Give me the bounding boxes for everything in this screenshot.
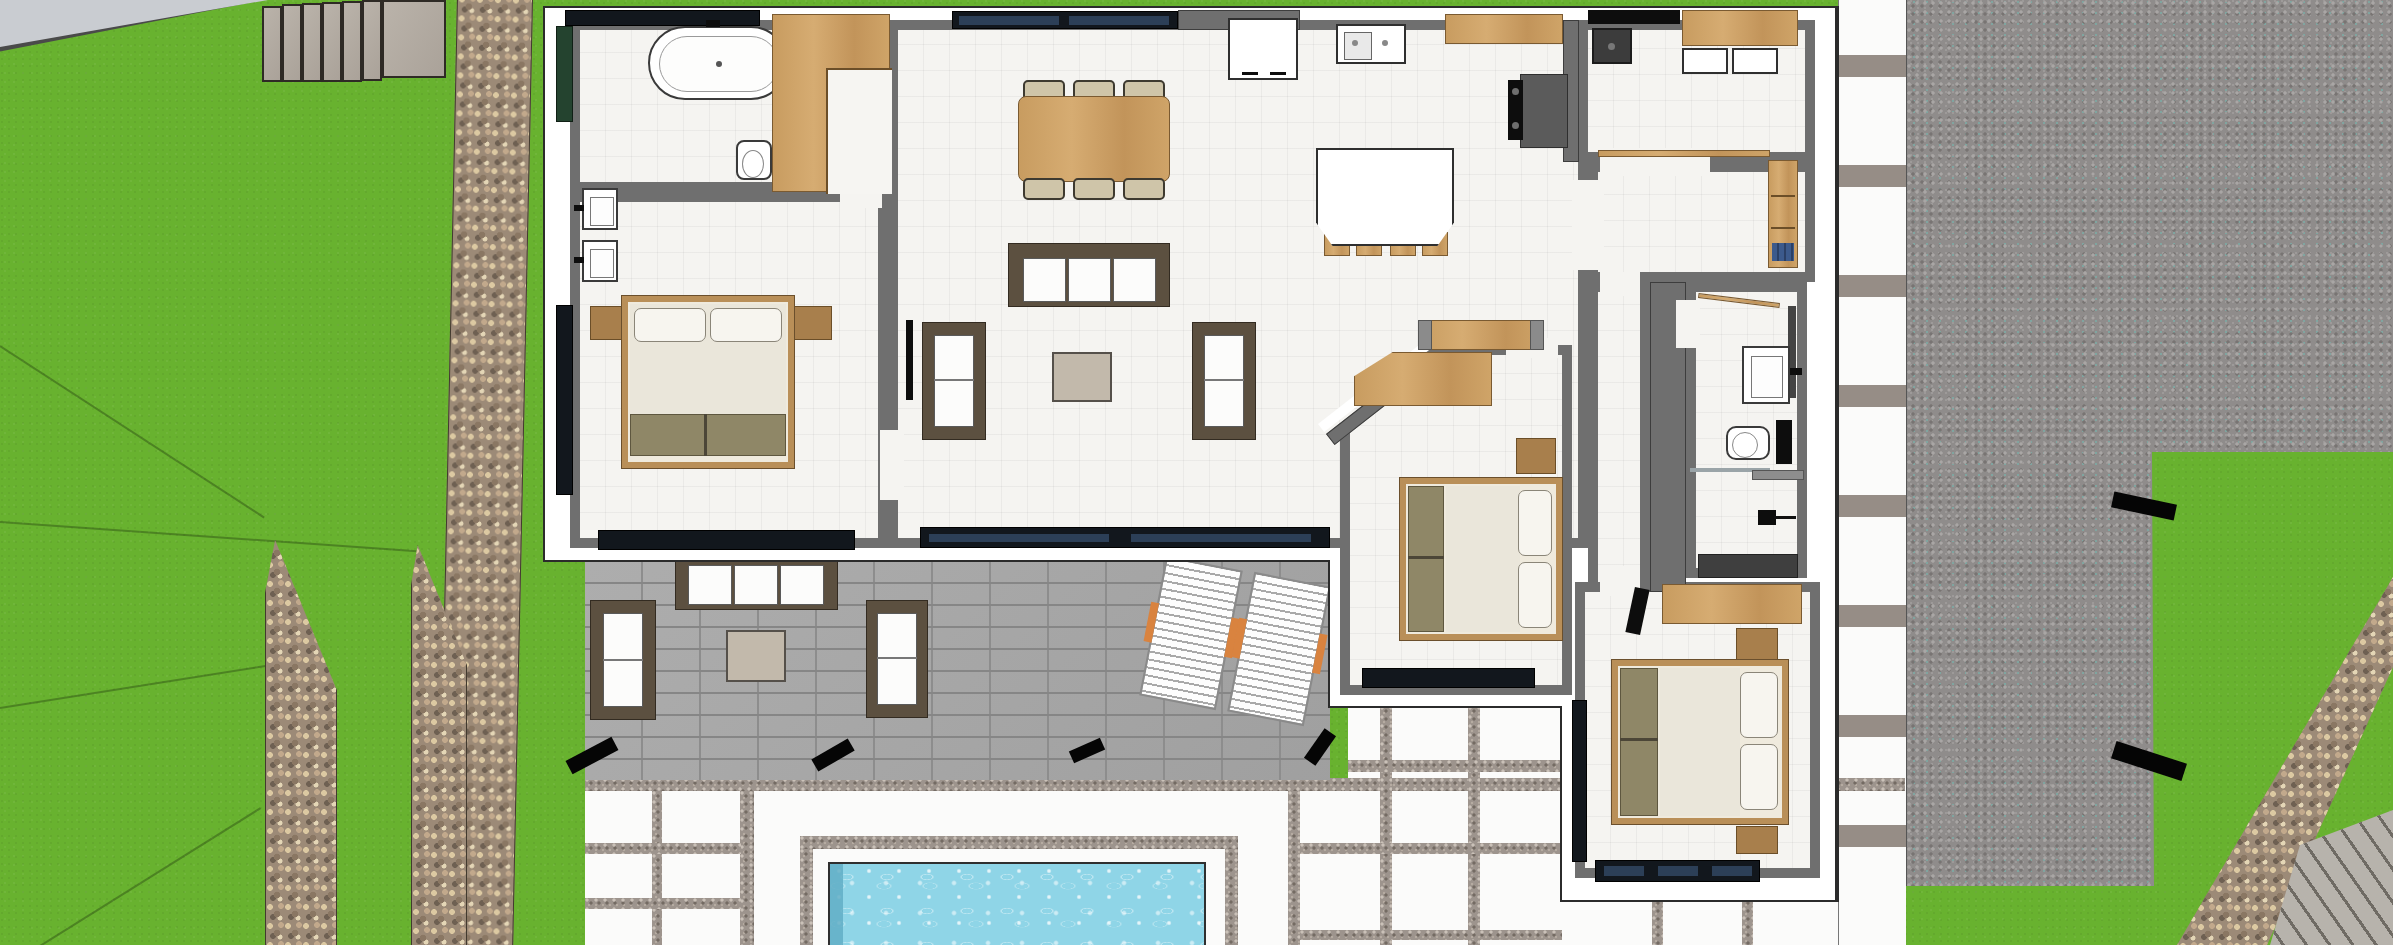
sofa-cushion bbox=[1113, 258, 1156, 302]
bathtub-drain bbox=[716, 61, 722, 67]
nightstand bbox=[590, 306, 622, 340]
burner bbox=[1512, 122, 1519, 129]
living-armchair bbox=[1192, 322, 1256, 440]
deck-joint bbox=[740, 791, 754, 945]
console-endcap bbox=[1418, 320, 1432, 350]
deck-joint bbox=[652, 791, 662, 945]
shower-arm bbox=[1774, 516, 1796, 519]
bed-pillow bbox=[1518, 562, 1552, 628]
sofa-cushion bbox=[734, 565, 778, 605]
bookcase-shelf bbox=[1771, 195, 1795, 197]
window-bath-north bbox=[565, 10, 760, 26]
garden-step bbox=[262, 6, 282, 82]
pantry-sink bbox=[1592, 28, 1632, 64]
dining-chair bbox=[1123, 178, 1165, 200]
cushion-seam bbox=[877, 657, 917, 659]
window-bedroom3-west bbox=[1572, 700, 1587, 862]
kitchen-island bbox=[1316, 148, 1454, 246]
laundry-appliance bbox=[1682, 48, 1728, 74]
kitchen-sink-counter bbox=[1336, 24, 1406, 64]
sink-basin bbox=[590, 197, 614, 226]
bed-mattress bbox=[1446, 486, 1520, 632]
sliding-door-living-south bbox=[920, 527, 1330, 548]
armchair-cushion bbox=[1204, 335, 1244, 427]
deck-joint bbox=[1288, 791, 1300, 945]
dining-table bbox=[1018, 96, 1170, 182]
vanity-faucet bbox=[574, 257, 584, 263]
window-pane bbox=[1069, 16, 1169, 25]
deck-joint bbox=[1380, 706, 1392, 945]
cabinet-handle bbox=[1270, 72, 1286, 75]
bench-seam bbox=[704, 414, 707, 456]
floorplan-render bbox=[0, 0, 2393, 945]
window-bath-west bbox=[556, 26, 573, 122]
kitchen-wood-cabinet bbox=[1445, 14, 1563, 44]
sliding-door-track bbox=[1598, 150, 1770, 157]
laundry-appliance bbox=[1732, 48, 1778, 74]
tub-faucet bbox=[706, 20, 720, 27]
window-living-north bbox=[952, 11, 1178, 29]
sofa-cushion bbox=[688, 565, 732, 605]
entry-console bbox=[1418, 320, 1544, 350]
wall-tv bbox=[906, 320, 913, 400]
bed-bedroom2 bbox=[1400, 478, 1562, 640]
nightstand bbox=[1736, 628, 1778, 662]
deck-joint bbox=[1742, 898, 1753, 945]
toilet-niche bbox=[1776, 420, 1792, 464]
sink-basin bbox=[590, 249, 614, 278]
bed-pillow bbox=[1518, 490, 1552, 556]
garden-step bbox=[282, 4, 302, 82]
bed-pillow bbox=[634, 308, 706, 342]
bed-pillow bbox=[710, 308, 782, 342]
patio-armchair bbox=[590, 600, 656, 720]
sink-basin bbox=[1751, 356, 1783, 398]
kitchen-sink bbox=[1344, 32, 1372, 60]
bench-seam bbox=[1408, 556, 1444, 559]
sofa-cushion bbox=[1068, 258, 1111, 302]
pantry-counter bbox=[1588, 10, 1680, 24]
burner bbox=[1512, 88, 1519, 95]
bed-foot-bench bbox=[630, 414, 786, 456]
pool-wall-shade bbox=[830, 864, 843, 945]
vanity-sink bbox=[582, 240, 618, 282]
cushion-seam bbox=[603, 659, 643, 661]
window-pane bbox=[1604, 866, 1644, 876]
toilet-bath2 bbox=[1726, 426, 1770, 460]
hall-bookcase bbox=[1768, 160, 1798, 268]
bed-pillow bbox=[1740, 672, 1778, 738]
cushion-seam bbox=[1204, 379, 1244, 381]
armchair-cushion bbox=[934, 335, 974, 427]
window-pane bbox=[1712, 866, 1752, 876]
bookcase-shelf bbox=[1771, 227, 1795, 229]
console-endcap bbox=[1530, 320, 1544, 350]
cooktop bbox=[1508, 80, 1523, 140]
sink-drain bbox=[1608, 43, 1615, 50]
dining-chair bbox=[1073, 178, 1115, 200]
toilet-bowl bbox=[742, 150, 764, 178]
toilet-master bbox=[736, 140, 772, 180]
nightstand bbox=[1736, 826, 1778, 854]
bedroom3-desk bbox=[1662, 584, 1802, 624]
door-hall-corridor bbox=[1600, 272, 1640, 296]
deck-joint bbox=[1348, 760, 1562, 772]
deck-joint bbox=[1652, 898, 1663, 945]
kitchen-tall-cabinet bbox=[1228, 18, 1298, 80]
garden-step bbox=[322, 2, 342, 82]
kitchen-oven-block bbox=[1520, 74, 1568, 148]
cabinet-handle bbox=[1242, 72, 1258, 75]
deck-below-bedroom3 bbox=[1562, 898, 1838, 945]
armchair-cushion bbox=[877, 613, 917, 705]
living-coffee-table bbox=[1052, 352, 1112, 402]
window-bedroom2-south bbox=[1362, 668, 1535, 688]
window-bedroom-south bbox=[598, 530, 855, 550]
living-sofa bbox=[1008, 243, 1170, 307]
shower-floor bbox=[1698, 554, 1798, 578]
window-pane bbox=[1658, 866, 1698, 876]
window-pane bbox=[929, 534, 1109, 542]
patio-coffee-table bbox=[726, 630, 786, 682]
pool-surround-joint bbox=[800, 849, 813, 945]
bath2-vanity bbox=[1742, 346, 1790, 404]
bathtub bbox=[648, 26, 788, 100]
bed-pillow bbox=[1740, 744, 1778, 810]
pool-surround-joint bbox=[1225, 849, 1238, 945]
window-pane bbox=[959, 16, 1059, 25]
bed-mattress bbox=[1660, 668, 1740, 816]
bed-master bbox=[622, 296, 794, 468]
bench-seam bbox=[1620, 738, 1658, 741]
door-corridor-bath2 bbox=[1676, 300, 1700, 348]
door-living-hall bbox=[1572, 180, 1604, 270]
nightstand bbox=[792, 306, 832, 340]
bookcase-books bbox=[1772, 243, 1794, 261]
door-suite-living bbox=[880, 430, 904, 500]
bed-side-bench bbox=[1620, 668, 1658, 816]
garden-step-landing bbox=[382, 0, 446, 78]
dining-chair bbox=[1023, 178, 1065, 200]
garden-step bbox=[302, 3, 322, 82]
vanity-sink bbox=[582, 188, 618, 230]
cushion-seam bbox=[934, 379, 974, 381]
wardrobe-interior bbox=[826, 68, 892, 194]
vanity-faucet bbox=[574, 205, 584, 211]
bed-side-bench bbox=[1408, 486, 1444, 632]
deck-joint bbox=[585, 898, 741, 909]
deck-joint bbox=[1468, 706, 1480, 945]
sofa-cushion bbox=[780, 565, 824, 605]
sink-faucet-dot bbox=[1352, 40, 1358, 46]
garden-step bbox=[362, 0, 382, 81]
deck-joint bbox=[585, 843, 741, 854]
window-pane bbox=[1131, 534, 1311, 542]
toilet-bowl bbox=[1732, 432, 1758, 458]
living-armchair bbox=[922, 322, 986, 440]
shower-shelf bbox=[1752, 470, 1804, 480]
patio-armchair bbox=[866, 600, 928, 718]
window-bedroom3-south bbox=[1595, 860, 1760, 882]
bed-bedroom3 bbox=[1612, 660, 1788, 824]
sofa-cushion bbox=[1023, 258, 1066, 302]
deck-joint bbox=[1300, 930, 1562, 940]
pool-surround-joint bbox=[800, 836, 1238, 849]
window-bedroom-west bbox=[556, 305, 573, 495]
pantry-wood-cabinet bbox=[1682, 10, 1798, 46]
nightstand bbox=[1516, 438, 1556, 474]
garden-step bbox=[342, 1, 362, 82]
room-corridor bbox=[1588, 282, 1650, 600]
sink-faucet-dot bbox=[1382, 40, 1388, 46]
stepping-slab-walkway bbox=[1838, 0, 1906, 945]
pool-water bbox=[828, 862, 1206, 945]
deck-joint bbox=[1300, 843, 1562, 854]
vanity-faucet bbox=[1790, 368, 1802, 375]
